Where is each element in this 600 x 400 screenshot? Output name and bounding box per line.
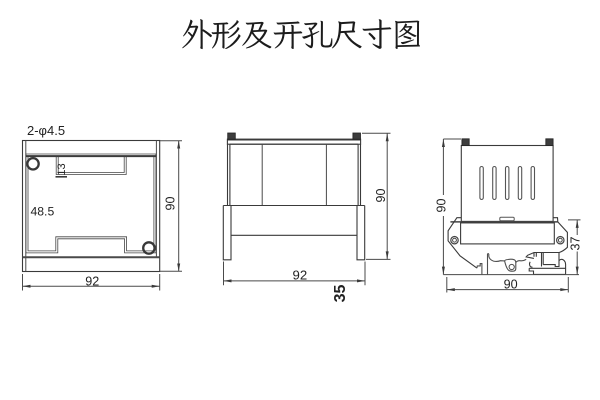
svg-text:92: 92 bbox=[293, 267, 308, 282]
svg-text:13: 13 bbox=[56, 163, 68, 175]
svg-text:37: 37 bbox=[569, 237, 583, 251]
svg-text:2-φ4.5: 2-φ4.5 bbox=[27, 123, 65, 138]
svg-text:92: 92 bbox=[85, 274, 99, 288]
svg-text:90: 90 bbox=[164, 197, 178, 211]
svg-text:90: 90 bbox=[504, 277, 518, 291]
svg-text:48.5: 48.5 bbox=[31, 205, 55, 219]
svg-text:35: 35 bbox=[332, 285, 349, 303]
svg-text:90: 90 bbox=[374, 189, 388, 203]
svg-text:90: 90 bbox=[435, 199, 449, 213]
